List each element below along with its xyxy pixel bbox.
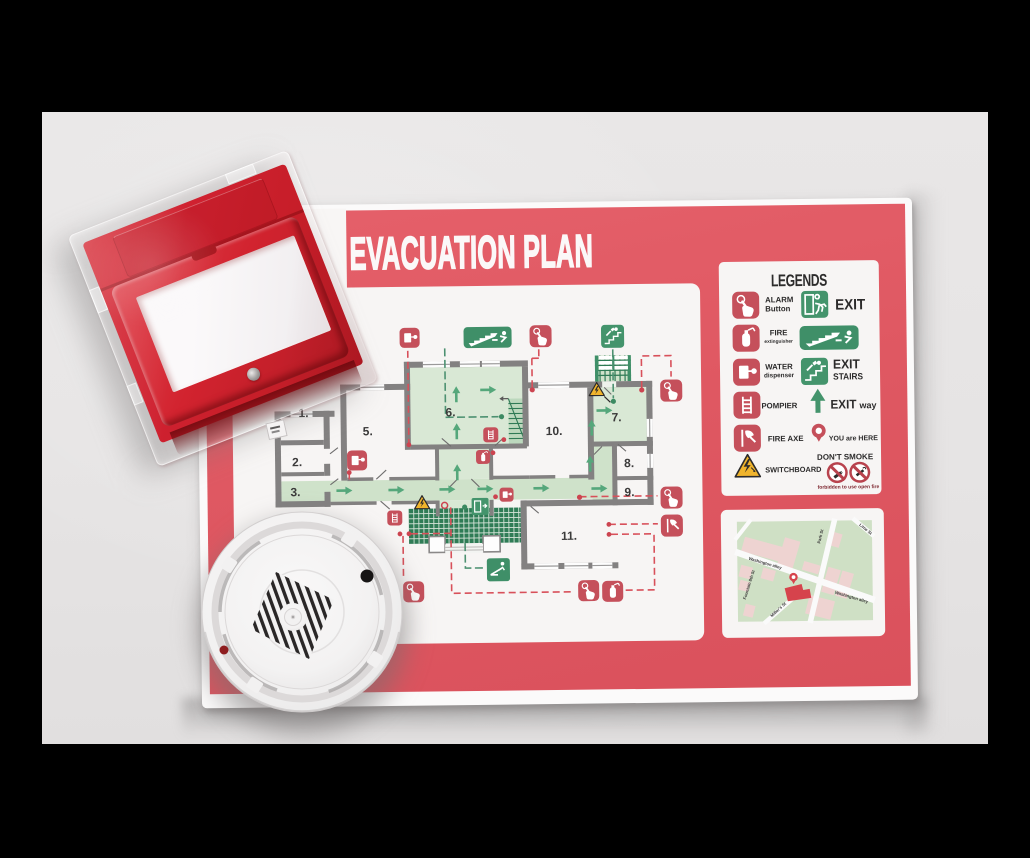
svg-text:POMPIER: POMPIER [761,401,797,410]
svg-text:YOU are HERE: YOU are HERE [829,435,878,443]
svg-text:SWITCHBOARD: SWITCHBOARD [765,465,822,475]
svg-text:11.: 11. [561,529,577,543]
svg-text:FIRE: FIRE [770,328,788,337]
svg-text:10.: 10. [546,424,563,438]
svg-text:dispenser: dispenser [764,372,795,379]
svg-text:DON'T SMOKE: DON'T SMOKE [817,452,874,462]
svg-text:FIRE AXE: FIRE AXE [768,434,804,443]
svg-text:Button: Button [765,304,790,313]
svg-text:EXIT: EXIT [833,356,860,371]
svg-text:EXIT: EXIT [830,397,856,411]
svg-text:ALARM: ALARM [765,295,793,304]
svg-text:3.: 3. [290,485,300,499]
svg-text:8.: 8. [624,456,634,470]
svg-text:9.: 9. [624,485,634,499]
svg-text:2.: 2. [292,455,302,469]
svg-text:5.: 5. [363,424,373,438]
svg-text:EXIT: EXIT [835,296,865,313]
svg-text:WATER: WATER [765,362,793,371]
svg-text:forbidden to use open fire: forbidden to use open fire [818,484,880,491]
svg-text:way: way [858,400,876,410]
svg-text:LEGENDS: LEGENDS [771,271,827,291]
svg-text:extinguisher: extinguisher [764,339,793,345]
svg-text:STAIRS: STAIRS [833,371,863,381]
svg-text:6.: 6. [445,405,455,419]
svg-text:7.: 7. [611,410,621,424]
